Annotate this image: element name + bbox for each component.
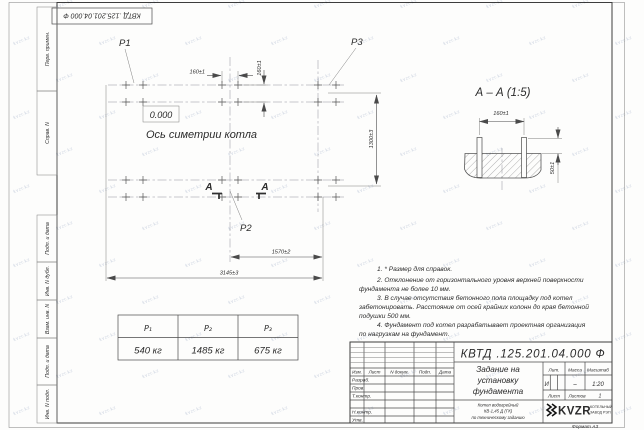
level-mark: 0.000 (150, 110, 173, 120)
company-name-line1: КОТЕЛЬНЫЙ (590, 405, 613, 409)
staff-utv: Утв. (352, 418, 363, 424)
anchor-bolt-left (477, 138, 482, 178)
dim-text: 160±1 (189, 70, 205, 76)
scale-label: Масштаб (587, 368, 609, 373)
foundation-plan: P1 P3 P2 0.000 Ось симетрии котла А А 16… (106, 37, 381, 281)
doc-title-line: фундамента (473, 387, 524, 396)
section-a-a: А – А (1:5) 160±1 50±1 (465, 87, 563, 190)
logo-zigzag-icon (547, 404, 556, 416)
dim-text: 1570±2 (272, 250, 292, 256)
plan-extension-lines (106, 71, 381, 281)
staff-tkontr: Т.контр. (352, 394, 371, 400)
dim-160-vertical: 160±1 (257, 60, 264, 117)
note-line: забетонировать. Расстояние от осей крайн… (358, 303, 589, 311)
load-value-p3: 675 кг (254, 346, 282, 357)
col-podp: Подп. (419, 370, 431, 375)
note-line: 1. * Размер для справок. (377, 265, 452, 273)
sheets-label: Листов (567, 394, 586, 399)
dim-text: 50±1 (550, 162, 556, 174)
side-label-podp-data-2: Подп. и дата (45, 345, 51, 378)
sheets-value: 1 (599, 394, 602, 400)
note-line: 4. Фундамент под котел разрабатывает про… (377, 321, 586, 329)
mass-value: – (572, 382, 577, 388)
sheet-frame: КВТД .125.201.04.000 Ф Перв. примен. Спр… (9, 3, 625, 430)
doc-title-line: Задание на (476, 365, 520, 374)
lit-label: Лит. (548, 368, 560, 373)
col-list: Лист (368, 370, 381, 375)
scale-value: 1:20 (592, 382, 604, 388)
side-label-inv-podl: Инв. N подл. (45, 389, 51, 419)
page-edge (9, 3, 625, 428)
col-izm: Изм. (352, 370, 362, 375)
side-label-vzam-inv: Взам. инв. N (45, 304, 51, 334)
dim-1300: 1300±3 (369, 95, 377, 184)
note-line: 2. Отклонение от горизонтального уровня … (376, 276, 584, 284)
concrete-pad-hatched (465, 154, 542, 179)
product-line: по техническому заданию (471, 415, 525, 420)
side-label-sprav-n: Справ. N (45, 122, 51, 144)
top-stamp-text: КВТД .125.201.04.000 Ф (63, 12, 141, 19)
note-line: по нагрузкам на фундамент. (359, 330, 450, 338)
section-letter-left: А (204, 182, 212, 193)
boiler-axis-label: Ось симетрии котла (146, 129, 257, 141)
drawing-sheet: КВТД .125.201.04.000 Ф Перв. примен. Спр… (0, 0, 644, 430)
side-label-perv-primen: Перв. примен. (45, 32, 51, 66)
point-label-p2: P2 (240, 223, 252, 234)
plan-centerlines (108, 57, 344, 262)
company-logo: KVZR КОТЕЛЬНЫЙ ЗАВОД РЭП (547, 404, 613, 418)
load-header-p1: P₁ (144, 324, 152, 333)
title-block: КВТД .125.201.04.000 Ф Задание на устано… (350, 342, 613, 424)
mass-label: Масса (568, 368, 582, 373)
anchor-bolt-crosses (122, 81, 340, 201)
dim-160-horizontal: 160±1 (189, 70, 253, 76)
loads-table: P₁ P₂ P₃ 540 кг 1485 кг 675 кг (118, 315, 298, 360)
lit-value: И (544, 382, 549, 388)
company-name-line2: ЗАВОД РЭП (590, 411, 611, 415)
dim-3145: 3145±3 (107, 271, 322, 279)
product-line: Котел водогрейный (478, 403, 519, 408)
load-header-p3: P₃ (264, 324, 272, 333)
section-cut-marks (212, 194, 266, 200)
dim-1570: 1570±2 (231, 250, 322, 258)
dim-text: 3145±3 (220, 271, 240, 277)
product-line: КВ-1,45 Д (ГК) (484, 409, 513, 414)
staff-razrab: Разраб. (352, 378, 369, 384)
drawing-sheet-svg: КВТД .125.201.04.000 Ф Перв. примен. Спр… (0, 0, 644, 430)
note-line: 3. В случае отсутствия бетонного пола пл… (377, 294, 573, 302)
side-label-podp-data-1: Подп. и дата (45, 222, 51, 255)
point-label-p3: P3 (351, 37, 363, 48)
col-ndokum: N докум. (390, 370, 409, 375)
note-line: подушки 500 мм. (359, 312, 411, 320)
side-label-inv-dubl: Инв. N дубл. (45, 266, 51, 296)
note-line: фундамента не более 10 мм. (359, 285, 451, 293)
dim-text: 160±1 (493, 111, 509, 117)
staff-nkontr: Н.контр. (352, 410, 372, 416)
format-label: Формат А3 (572, 424, 599, 430)
col-data: Дата (438, 370, 452, 375)
load-value-p2: 1485 кг (192, 346, 225, 357)
staff-prov: Пров. (352, 386, 365, 392)
designation: КВТД .125.201.04.000 Ф (461, 349, 606, 361)
logo-text: KVZR (558, 406, 591, 418)
doc-title-line: установку (477, 376, 520, 385)
point-label-p1: P1 (119, 38, 131, 49)
load-header-p2: P₂ (204, 324, 213, 333)
dim-section-160: 160±1 (480, 111, 525, 135)
section-title: А – А (1:5) (475, 87, 531, 99)
section-letter-right: А (260, 182, 268, 193)
dim-text: 1300±3 (369, 129, 375, 149)
dim-text: 160±1 (257, 60, 263, 76)
technical-notes: 1. * Размер для справок. 2. Отклонение о… (358, 265, 589, 338)
load-value-p1: 540 кг (134, 346, 162, 357)
sheet-label: Лист (547, 394, 560, 399)
anchor-bolt-right (522, 138, 527, 178)
